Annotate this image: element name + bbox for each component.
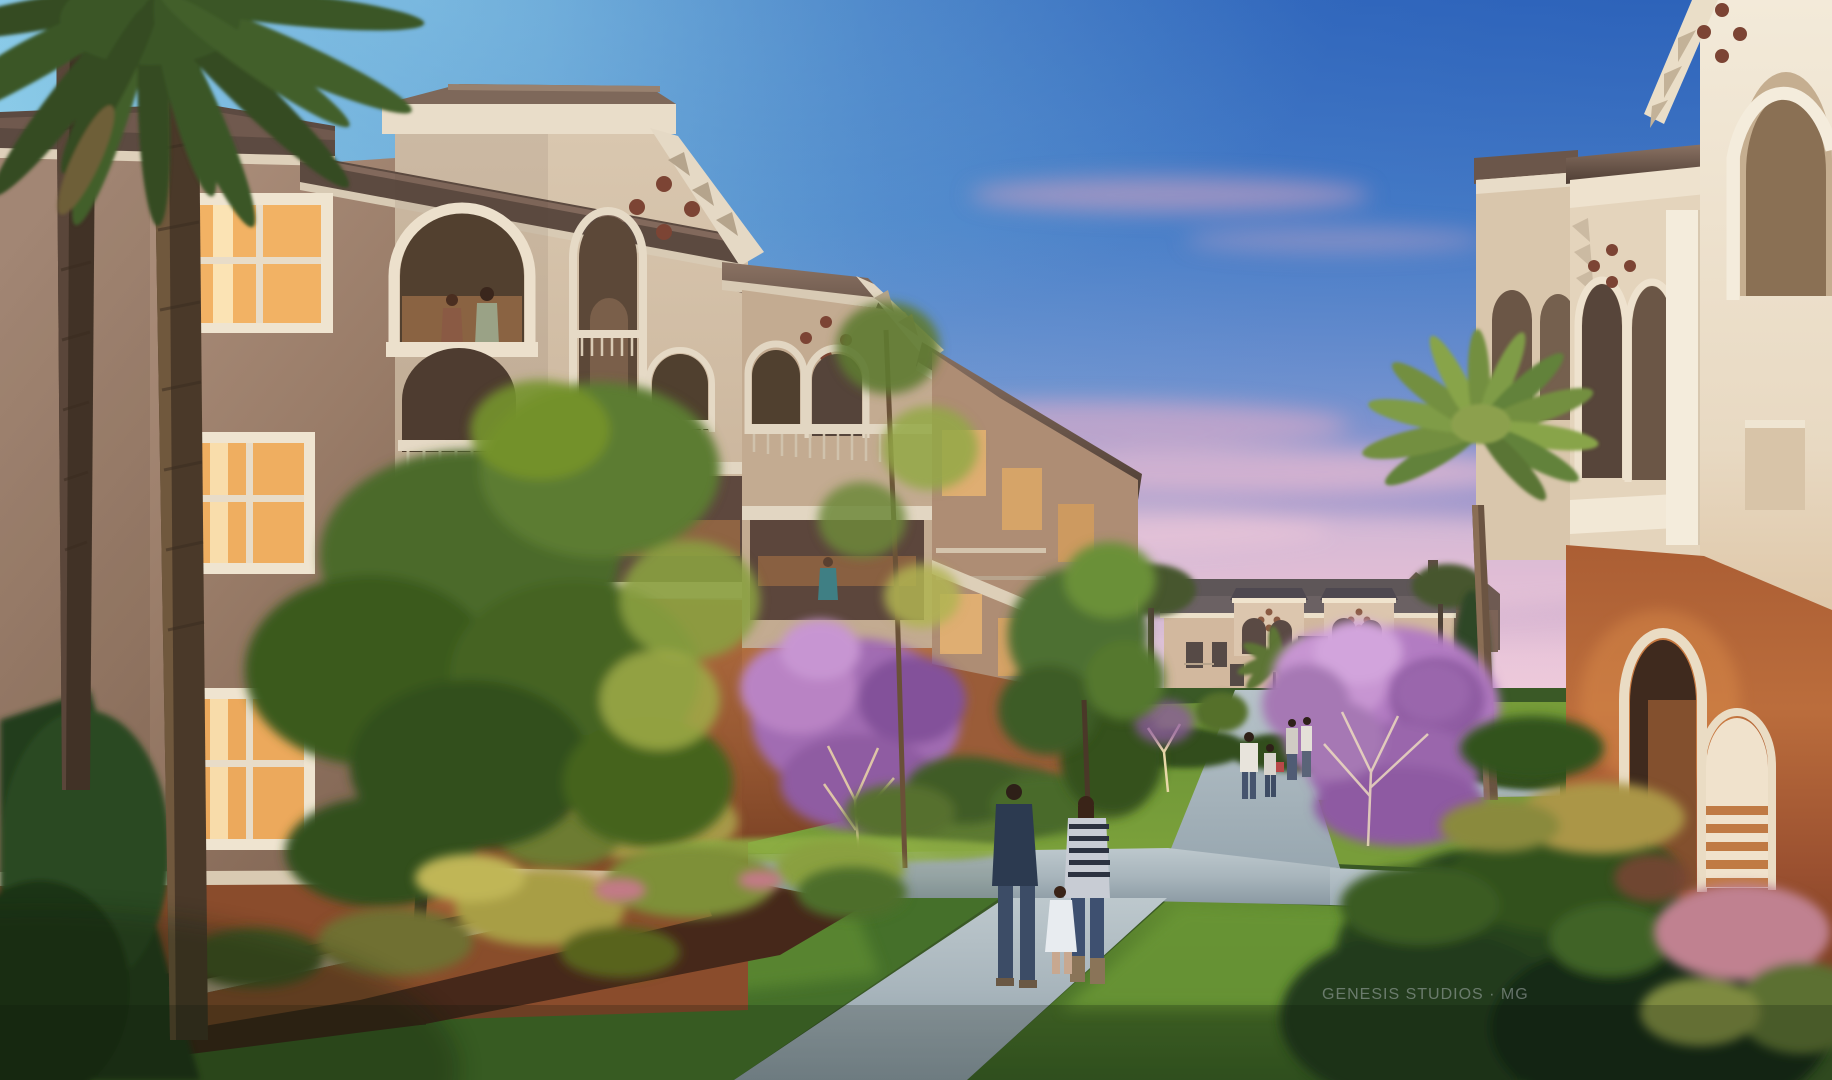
svg-text:GENESIS STUDIOS · MG: GENESIS STUDIOS · MG — [1322, 986, 1529, 1003]
